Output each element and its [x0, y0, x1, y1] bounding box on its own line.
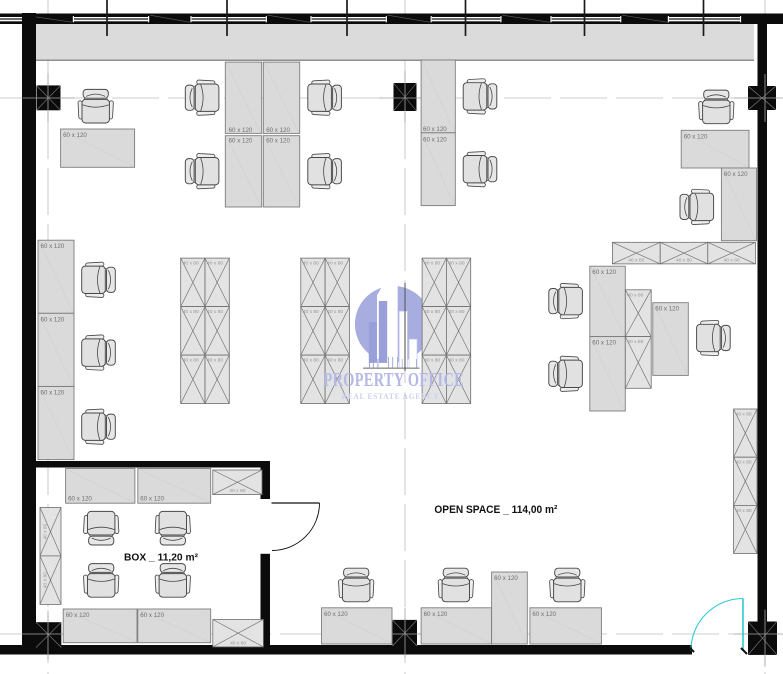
svg-text:40 x 80: 40 x 80	[43, 523, 49, 539]
svg-text:40 x 80: 40 x 80	[207, 261, 223, 267]
svg-text:40 x 80: 40 x 80	[736, 460, 752, 466]
svg-text:40 x 80: 40 x 80	[724, 257, 740, 263]
svg-text:40 x 80: 40 x 80	[43, 572, 49, 588]
svg-text:40 x 80: 40 x 80	[303, 261, 319, 267]
svg-text:40 x 80: 40 x 80	[628, 257, 644, 263]
svg-text:60 x 120: 60 x 120	[63, 132, 87, 139]
svg-text:40 x 80: 40 x 80	[229, 488, 245, 494]
svg-text:60 x 120: 60 x 120	[592, 340, 616, 347]
svg-text:40 x 80: 40 x 80	[327, 309, 343, 315]
svg-text:40 x 80: 40 x 80	[303, 358, 319, 364]
svg-text:60 x 120: 60 x 120	[324, 611, 348, 618]
svg-text:60 x 120: 60 x 120	[423, 126, 447, 133]
svg-text:OPEN SPACE _ 114,00 m²: OPEN SPACE _ 114,00 m²	[434, 504, 557, 516]
svg-text:60 x 120: 60 x 120	[655, 306, 679, 313]
svg-text:40 x 80: 40 x 80	[736, 508, 752, 514]
svg-text:60 x 120: 60 x 120	[592, 269, 616, 276]
svg-text:60 x 120: 60 x 120	[494, 575, 518, 582]
svg-text:40 x 80: 40 x 80	[327, 358, 343, 364]
svg-text:60 x 120: 60 x 120	[140, 612, 164, 619]
svg-text:40 x 80: 40 x 80	[736, 412, 752, 418]
svg-text:40 x 80: 40 x 80	[627, 292, 643, 298]
svg-text:40 x 80: 40 x 80	[448, 309, 464, 315]
svg-text:PROPERTY OFFICE: PROPERTY OFFICE	[324, 370, 465, 391]
svg-text:40 x 80: 40 x 80	[448, 358, 464, 364]
svg-text:40 x 80: 40 x 80	[183, 309, 199, 315]
svg-text:60 x 120: 60 x 120	[41, 316, 65, 323]
svg-text:60 x 120: 60 x 120	[266, 127, 290, 134]
svg-text:60 x 120: 60 x 120	[68, 496, 92, 503]
svg-text:40 x 80: 40 x 80	[627, 339, 643, 345]
svg-text:60 x 120: 60 x 120	[140, 496, 164, 503]
svg-text:60 x 120: 60 x 120	[229, 138, 253, 145]
svg-text:40 x 80: 40 x 80	[183, 358, 199, 364]
svg-text:60 x 120: 60 x 120	[423, 137, 447, 144]
svg-text:40 x 80: 40 x 80	[327, 261, 343, 267]
svg-text:60 x 120: 60 x 120	[532, 611, 556, 618]
svg-text:40 x 80: 40 x 80	[183, 261, 199, 267]
svg-text:40 x 80: 40 x 80	[424, 309, 440, 315]
svg-text:REAL ESTATE AGENCY: REAL ESTATE AGENCY	[342, 392, 440, 401]
svg-text:40 x 80: 40 x 80	[207, 358, 223, 364]
svg-text:60 x 120: 60 x 120	[66, 612, 90, 619]
svg-text:60 x 120: 60 x 120	[266, 138, 290, 145]
svg-text:60 x 120: 60 x 120	[41, 243, 65, 250]
svg-text:40 x 80: 40 x 80	[424, 358, 440, 364]
svg-text:40 x 80: 40 x 80	[230, 640, 246, 646]
svg-text:60 x 120: 60 x 120	[424, 611, 448, 618]
svg-text:60 x 120: 60 x 120	[229, 127, 253, 134]
svg-text:60 x 120: 60 x 120	[724, 171, 748, 178]
svg-text:40 x 80: 40 x 80	[448, 261, 464, 267]
svg-text:40 x 80: 40 x 80	[207, 309, 223, 315]
svg-text:40 x 80: 40 x 80	[424, 261, 440, 267]
svg-text:60 x 120: 60 x 120	[684, 133, 708, 140]
svg-text:40 x 80: 40 x 80	[676, 257, 692, 263]
svg-text:40 x 80: 40 x 80	[303, 309, 319, 315]
svg-text:60 x 120: 60 x 120	[41, 390, 65, 397]
svg-text:BOX _ 11,20 m²: BOX _ 11,20 m²	[124, 552, 199, 563]
